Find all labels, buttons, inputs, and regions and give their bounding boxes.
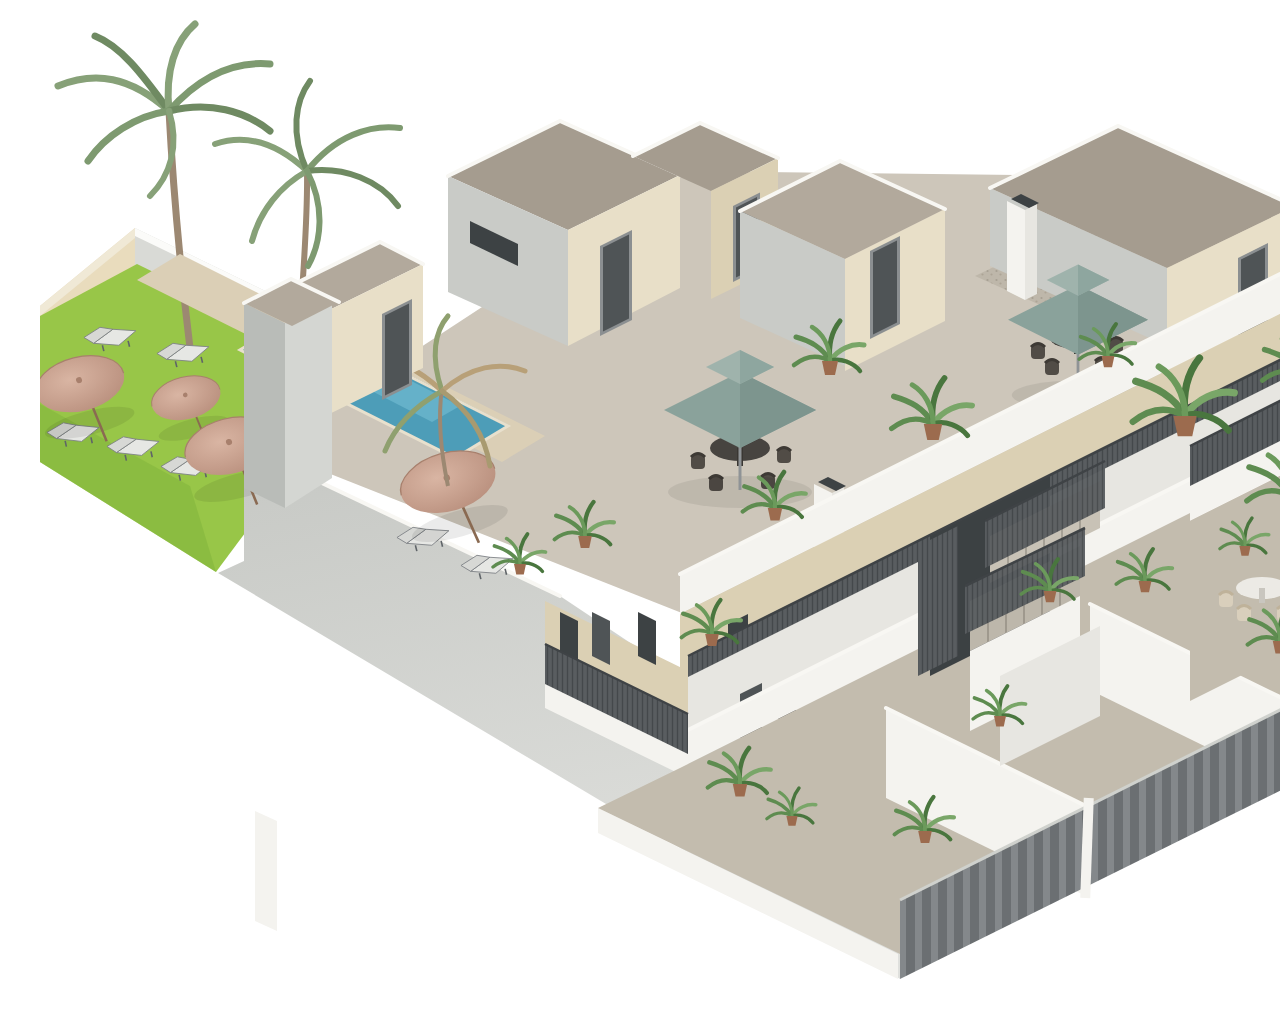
chimney: [1007, 194, 1039, 300]
render-canvas: [40, 16, 1280, 1024]
bulkhead-door: [382, 299, 412, 400]
palm-crown: [58, 24, 270, 196]
stair-railing-end: [918, 526, 958, 676]
architectural-render: [40, 16, 1280, 1024]
tower-slab-side: [285, 300, 332, 508]
bulkhead-r1-door: [870, 236, 900, 339]
wall-service-post: [255, 811, 277, 931]
roof-box-door: [600, 230, 632, 336]
tower-slab-face: [244, 303, 285, 508]
